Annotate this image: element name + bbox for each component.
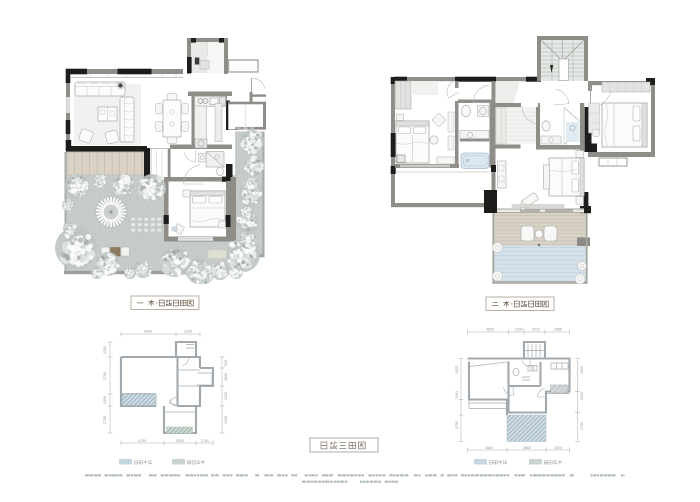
svg-text:1800: 1800 (224, 373, 228, 381)
svg-text:3860: 3860 (523, 446, 531, 450)
svg-text:2925: 2925 (455, 366, 459, 374)
svg-text:4500: 4500 (486, 328, 494, 332)
svg-text:925: 925 (224, 360, 228, 366)
svg-text:1700: 1700 (201, 439, 209, 443)
svg-text:2031: 2031 (532, 328, 540, 332)
svg-text:4750: 4750 (138, 439, 146, 443)
svg-text:1560: 1560 (485, 446, 493, 450)
svg-text:2234: 2234 (515, 328, 523, 332)
svg-text:3300: 3300 (176, 439, 184, 443)
svg-text:3750: 3750 (103, 372, 107, 380)
svg-text:1300: 1300 (103, 396, 107, 404)
svg-text:2466: 2466 (554, 328, 562, 332)
svg-text:3600: 3600 (144, 330, 152, 334)
svg-text:2125: 2125 (224, 392, 228, 400)
svg-text:2700: 2700 (580, 422, 584, 430)
svg-text:2400: 2400 (554, 446, 562, 450)
svg-text:1350: 1350 (103, 346, 107, 354)
svg-text:2100: 2100 (184, 330, 192, 334)
svg-text:1363: 1363 (455, 391, 459, 399)
svg-text:2700: 2700 (103, 416, 107, 424)
svg-text:2450: 2450 (224, 416, 228, 424)
svg-text:2925: 2925 (580, 366, 584, 374)
svg-text:2034: 2034 (580, 392, 584, 400)
svg-text:2700: 2700 (455, 421, 459, 429)
